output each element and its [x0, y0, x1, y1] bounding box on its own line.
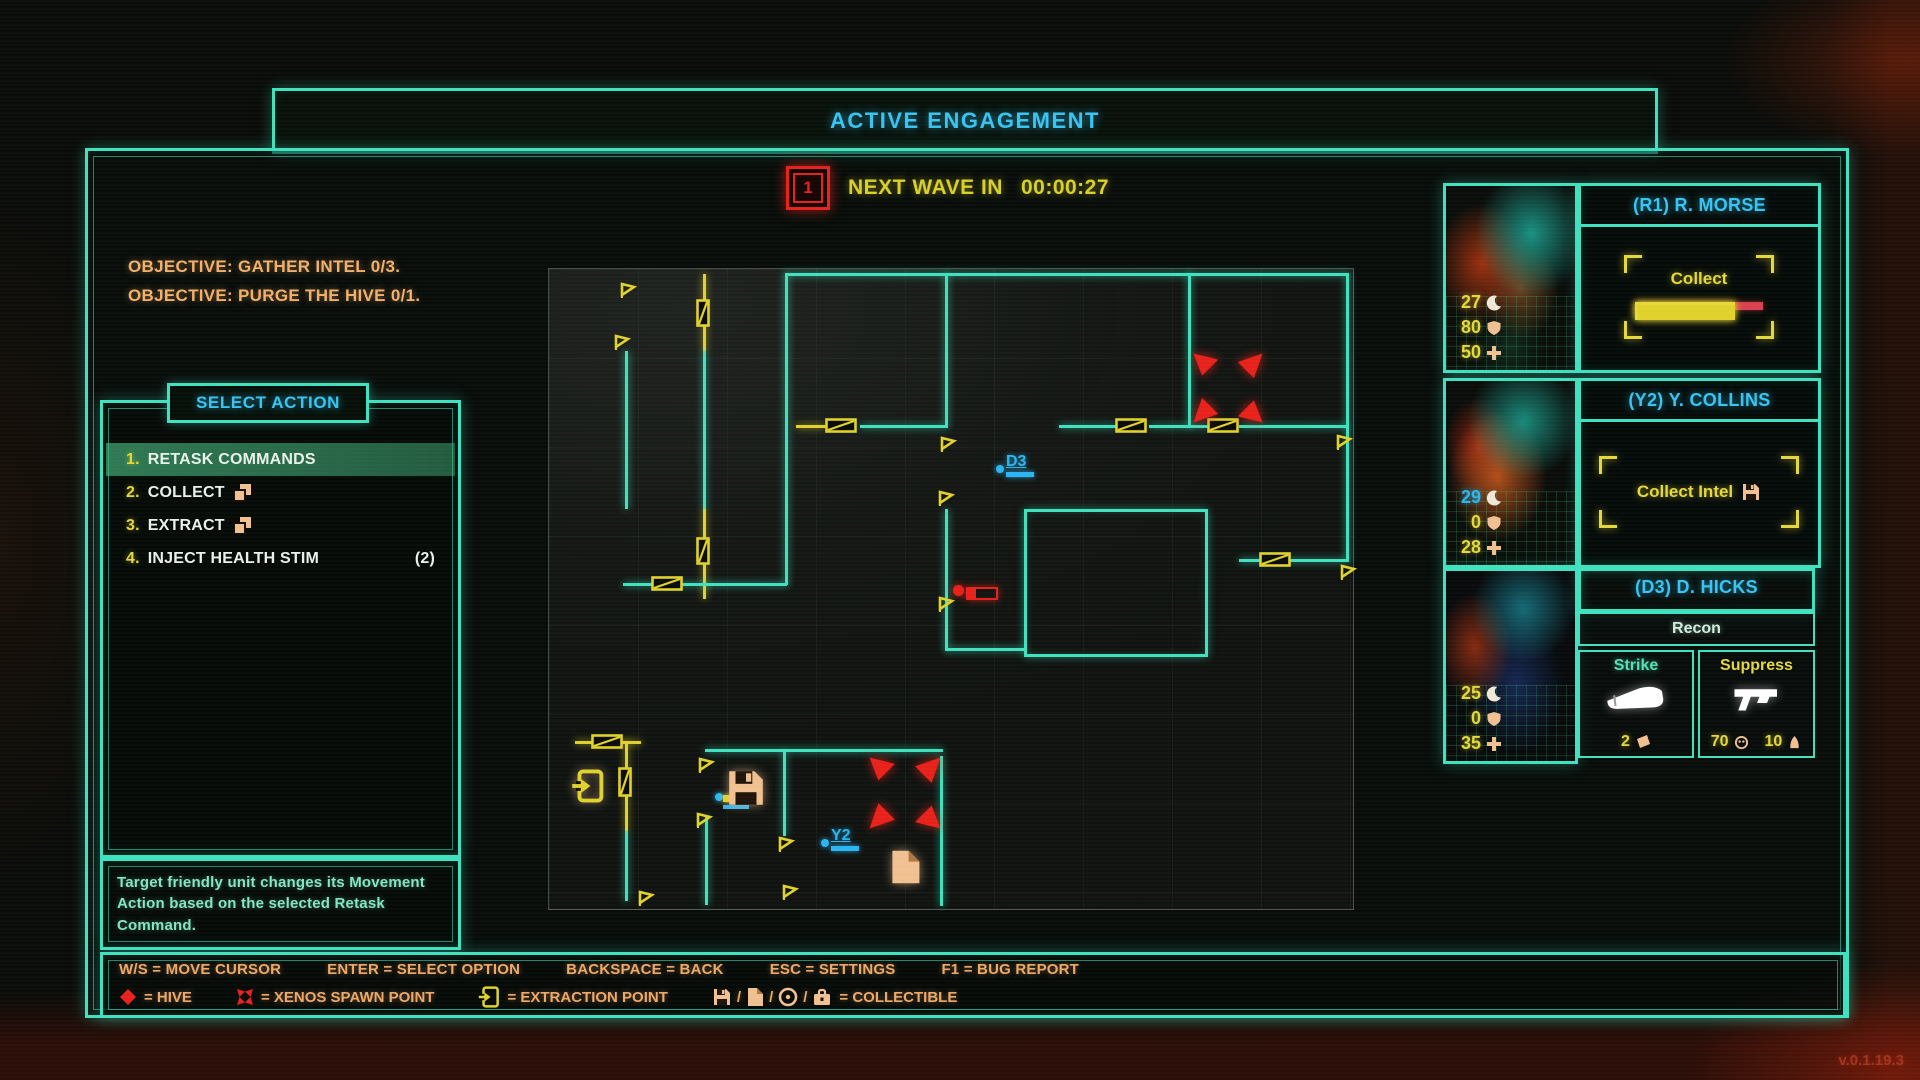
portrait-collins: 29028: [1443, 378, 1578, 568]
door-icon[interactable]: [1259, 552, 1291, 572]
teal-wall: [945, 273, 948, 425]
teal-wall: [623, 583, 787, 586]
waypoint-flag-icon: [637, 889, 655, 912]
strike-ability-button[interactable]: Strike 2: [1578, 650, 1694, 758]
stat-row: 0: [1451, 510, 1502, 535]
unit-stats: 29028: [1451, 485, 1502, 560]
teal-wall: [1346, 273, 1349, 428]
page-title: ACTIVE ENGAGEMENT: [830, 108, 1100, 134]
stat-row: 27: [1451, 290, 1502, 315]
teal-wall: [860, 425, 948, 428]
door-icon[interactable]: [591, 734, 623, 754]
unit-class-badge: Recon: [1578, 612, 1815, 646]
waypoint-flag-icon: [695, 811, 713, 834]
xenos-spawn-icon: [236, 988, 254, 1006]
shield-icon: [1486, 515, 1502, 531]
portrait-morse: 278050: [1443, 183, 1578, 373]
stat-row: 0: [1451, 706, 1502, 731]
room-outline: [1024, 509, 1208, 657]
key-hints: W/S = MOVE CURSOR ENTER = SELECT OPTION …: [119, 961, 1079, 978]
unit-stats: 278050: [1451, 290, 1502, 365]
menu-item-inject-health-stim[interactable]: 4. INJECT HEALTH STIM (2): [106, 542, 455, 575]
shield-icon: [1486, 711, 1502, 727]
portrait-hicks: 25035: [1443, 568, 1578, 764]
waypoint-flag-icon: [937, 595, 955, 618]
squad-panel-morse: 278050 (R1) R. MORSE Collect: [1443, 183, 1815, 367]
teal-wall: [703, 351, 706, 509]
hive-diamond-icon: [119, 988, 137, 1006]
floppy-disk-icon[interactable]: [725, 767, 767, 809]
crescent-icon: [1486, 686, 1502, 702]
door-icon[interactable]: [696, 537, 710, 570]
title-bar: ACTIVE ENGAGEMENT: [272, 88, 1658, 154]
menu-item-retask-commands[interactable]: 1. RETASK COMMANDS: [106, 443, 455, 476]
wave-timer: 1 NEXT WAVE IN 00:00:27: [786, 166, 1109, 210]
waypoint-flag-icon: [939, 435, 957, 458]
menu-item-collect[interactable]: 2. COLLECT: [106, 476, 455, 509]
teal-wall: [785, 273, 1349, 276]
teal-wall: [785, 273, 788, 585]
hint-item: F1 = BUG REPORT: [941, 961, 1079, 978]
info-hicks: (D3) D. HICKS Recon Strike 2 Suppress 70: [1578, 568, 1815, 758]
cone-icon: [1787, 735, 1802, 750]
floppy-disk-icon: [1741, 482, 1761, 502]
door-icon[interactable]: [651, 576, 683, 596]
collect-progress-bar: [1635, 302, 1763, 310]
info-collins: (Y2) Y. COLLINS Collect Intel: [1578, 378, 1821, 568]
hint-item: BACKSPACE = BACK: [566, 961, 724, 978]
document-icon[interactable]: [887, 849, 923, 885]
stat-row: 28: [1451, 535, 1502, 560]
yellow-wall: [796, 425, 826, 428]
teal-wall: [1149, 425, 1191, 428]
waypoint-flag-icon: [781, 883, 799, 906]
stat-row: 80: [1451, 315, 1502, 340]
shield-icon: [1486, 320, 1502, 336]
unit-callsign: (Y2) Y. COLLINS: [1581, 381, 1818, 422]
briefcase-icon: [812, 987, 832, 1007]
squad-panel-collins: 29028 (Y2) Y. COLLINS Collect Intel: [1443, 378, 1815, 562]
hint-item: W/S = MOVE CURSOR: [119, 961, 281, 978]
floppy-disk-icon: [712, 987, 732, 1007]
teal-wall: [945, 509, 948, 651]
crescent-icon: [1486, 490, 1502, 506]
teal-wall: [946, 648, 1026, 651]
wave-countdown: 00:00:27: [1021, 176, 1109, 200]
teal-wall: [625, 831, 628, 901]
legend-collectible: / / / = COLLECTIBLE: [712, 987, 957, 1007]
wave-number-icon: 1: [786, 166, 830, 210]
stat-row: 50: [1451, 340, 1502, 365]
action-description-box: Target friendly unit changes its Movemen…: [100, 858, 461, 950]
wave-label: NEXT WAVE IN: [848, 176, 1003, 200]
orb-icon: [1734, 735, 1749, 750]
stim-count: (2): [415, 550, 435, 568]
collect-action-button[interactable]: Collect: [1624, 255, 1774, 339]
door-icon[interactable]: [618, 767, 632, 802]
unit-stats: 25035: [1451, 681, 1502, 756]
pistol-icon: [1700, 683, 1813, 713]
waypoint-flag-icon: [697, 756, 715, 779]
legend-extraction: = EXTRACTION POINT: [478, 986, 667, 1008]
waypoint-flag-icon: [613, 333, 631, 356]
suppress-ability-button[interactable]: Suppress 70 10: [1698, 650, 1815, 758]
game-screen: ACTIVE ENGAGEMENT 1 NEXT WAVE IN 00:00:2…: [0, 0, 1920, 1080]
waypoint-flag-icon: [619, 281, 637, 304]
menu-item-extract[interactable]: 3. EXTRACT: [106, 509, 455, 542]
disc-icon: [778, 987, 798, 1007]
tactical-map[interactable]: D3Y2: [548, 268, 1354, 910]
extraction-door-icon[interactable]: [571, 769, 605, 803]
knife-icon: [1580, 683, 1692, 713]
teal-wall: [1239, 559, 1349, 562]
teal-wall: [625, 351, 628, 509]
hint-item: ENTER = SELECT OPTION: [327, 961, 520, 978]
door-icon[interactable]: [696, 299, 710, 332]
info-morse: (R1) R. MORSE Collect: [1578, 183, 1821, 373]
stat-row: 29: [1451, 485, 1502, 510]
objective-intel: OBJECTIVE: GATHER INTEL 0/3.: [128, 252, 420, 281]
legend-xenos-spawn: = XENOS SPAWN POINT: [236, 988, 435, 1006]
waypoint-flag-icon: [937, 489, 955, 512]
waypoint-flag-icon: [777, 835, 795, 858]
squad-panels: 278050 (R1) R. MORSE Collect 29028: [1443, 183, 1815, 758]
plus-icon: [1486, 345, 1502, 361]
door-icon[interactable]: [1115, 418, 1147, 438]
stat-row: 25: [1451, 681, 1502, 706]
collect-intel-action-button[interactable]: Collect Intel: [1599, 456, 1799, 528]
magazine-icon: [1635, 734, 1651, 750]
version-label: v.0.1.19.3: [1838, 1052, 1904, 1069]
teal-wall: [1059, 425, 1117, 428]
document-icon: [746, 987, 764, 1007]
unit-callsign: (D3) D. HICKS: [1581, 571, 1812, 603]
legend-hive: = HIVE: [119, 988, 192, 1006]
plus-icon: [1486, 540, 1502, 556]
xenos-spawn-icon: [867, 755, 943, 836]
xenos-spawn-icon: [1191, 351, 1265, 430]
select-action-panel: SELECT ACTION 1. RETASK COMMANDS 2. COLL…: [100, 400, 461, 858]
objective-hive: OBJECTIVE: PURGE THE HIVE 0/1.: [128, 281, 420, 310]
stat-row: 35: [1451, 731, 1502, 756]
unit-callsign: (R1) R. MORSE: [1581, 186, 1818, 227]
action-menu: 1. RETASK COMMANDS 2. COLLECT 3. EXTRACT…: [106, 443, 455, 575]
crescent-icon: [1486, 295, 1502, 311]
select-action-header: SELECT ACTION: [167, 383, 369, 423]
plus-icon: [1486, 736, 1502, 752]
teal-wall: [783, 752, 786, 836]
hint-item: ESC = SETTINGS: [770, 961, 896, 978]
teal-wall: [705, 749, 943, 752]
map-legend: = HIVE = XENOS SPAWN POINT = EXTRACTION …: [119, 986, 957, 1008]
door-icon[interactable]: [825, 418, 857, 438]
stack-papers-icon: [233, 483, 252, 502]
hint-bar: W/S = MOVE CURSOR ENTER = SELECT OPTION …: [100, 952, 1846, 1018]
objectives: OBJECTIVE: GATHER INTEL 0/3. OBJECTIVE: …: [128, 252, 420, 310]
stack-papers-icon: [233, 516, 252, 535]
action-description: Target friendly unit changes its Movemen…: [103, 861, 458, 947]
squad-panel-hicks: 25035 (D3) D. HICKS Recon Strike 2 Suppr…: [1443, 568, 1815, 758]
extraction-door-icon: [478, 986, 500, 1008]
waypoint-flag-icon: [1335, 433, 1353, 456]
waypoint-flag-icon: [1339, 563, 1357, 586]
